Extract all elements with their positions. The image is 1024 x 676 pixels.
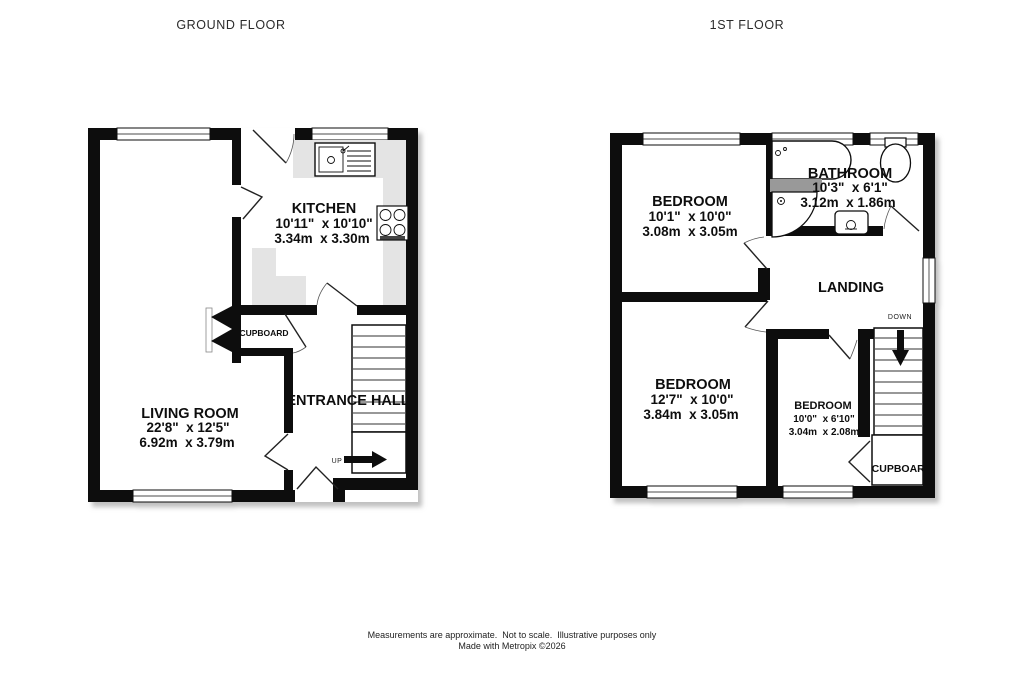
floorplan-page: GROUND FLOOR 1ST FLOOR	[0, 0, 1024, 676]
first-cupboard-label: CUPBOARD	[872, 463, 933, 475]
bathroom-imperial: 10'3" x 6'1"	[812, 180, 888, 195]
living-room-imperial: 22'8" x 12'5"	[146, 420, 229, 435]
kitchen-sink-icon	[315, 143, 375, 176]
bedroom-left-metric: 3.84m x 3.05m	[643, 407, 738, 422]
floorplan-canvas: GROUND FLOOR 1ST FLOOR	[0, 0, 1024, 676]
up-label: UP	[332, 458, 343, 465]
first-floor-title: 1ST FLOOR	[710, 18, 785, 32]
landing-label: LANDING	[818, 280, 884, 296]
living-room-metric: 6.92m x 3.79m	[139, 435, 234, 450]
bedroom-left-imperial: 12'7" x 10'0"	[650, 392, 733, 407]
first-floor-plan: BEDROOM 10'1" x 10'0" 3.08m x 3.05m BATH…	[610, 133, 935, 498]
disclaimer-line1: Measurements are approximate. Not to sca…	[368, 630, 657, 640]
ground-cupboard-label: CUPBOARD	[239, 328, 288, 338]
stairs-down	[872, 328, 923, 485]
bedroom-small-label: BEDROOM	[794, 400, 851, 412]
kitchen-label: KITCHEN	[292, 201, 356, 217]
bedroom-small-imperial: 10'0" x 6'10"	[793, 414, 855, 425]
bedroom-left-label: BEDROOM	[655, 377, 731, 393]
down-label: DOWN	[888, 314, 912, 321]
bedroom-top-imperial: 10'1" x 10'0"	[648, 209, 731, 224]
bedroom-top-metric: 3.08m x 3.05m	[642, 224, 737, 239]
ground-floor-title: GROUND FLOOR	[176, 18, 285, 32]
bathroom-metric: 3.12m x 1.86m	[800, 195, 895, 210]
kitchen-imperial: 10'11" x 10'10"	[275, 216, 372, 231]
bedroom-top-label: BEDROOM	[652, 194, 728, 210]
first-cupboard-box	[872, 435, 923, 485]
disclaimer-line2: Made with Metropix ©2026	[458, 641, 565, 651]
bedroom-small-metric: 3.04m x 2.08m	[789, 427, 860, 438]
ground-floor-plan: KITCHEN 10'11" x 10'10" 3.34m x 3.30m LI…	[88, 128, 418, 502]
kitchen-metric: 3.34m x 3.30m	[274, 231, 369, 246]
basin-icon	[835, 211, 868, 234]
entrance-hall-label: ENTRANCE HALL	[286, 393, 409, 409]
hob-icon	[377, 206, 408, 240]
